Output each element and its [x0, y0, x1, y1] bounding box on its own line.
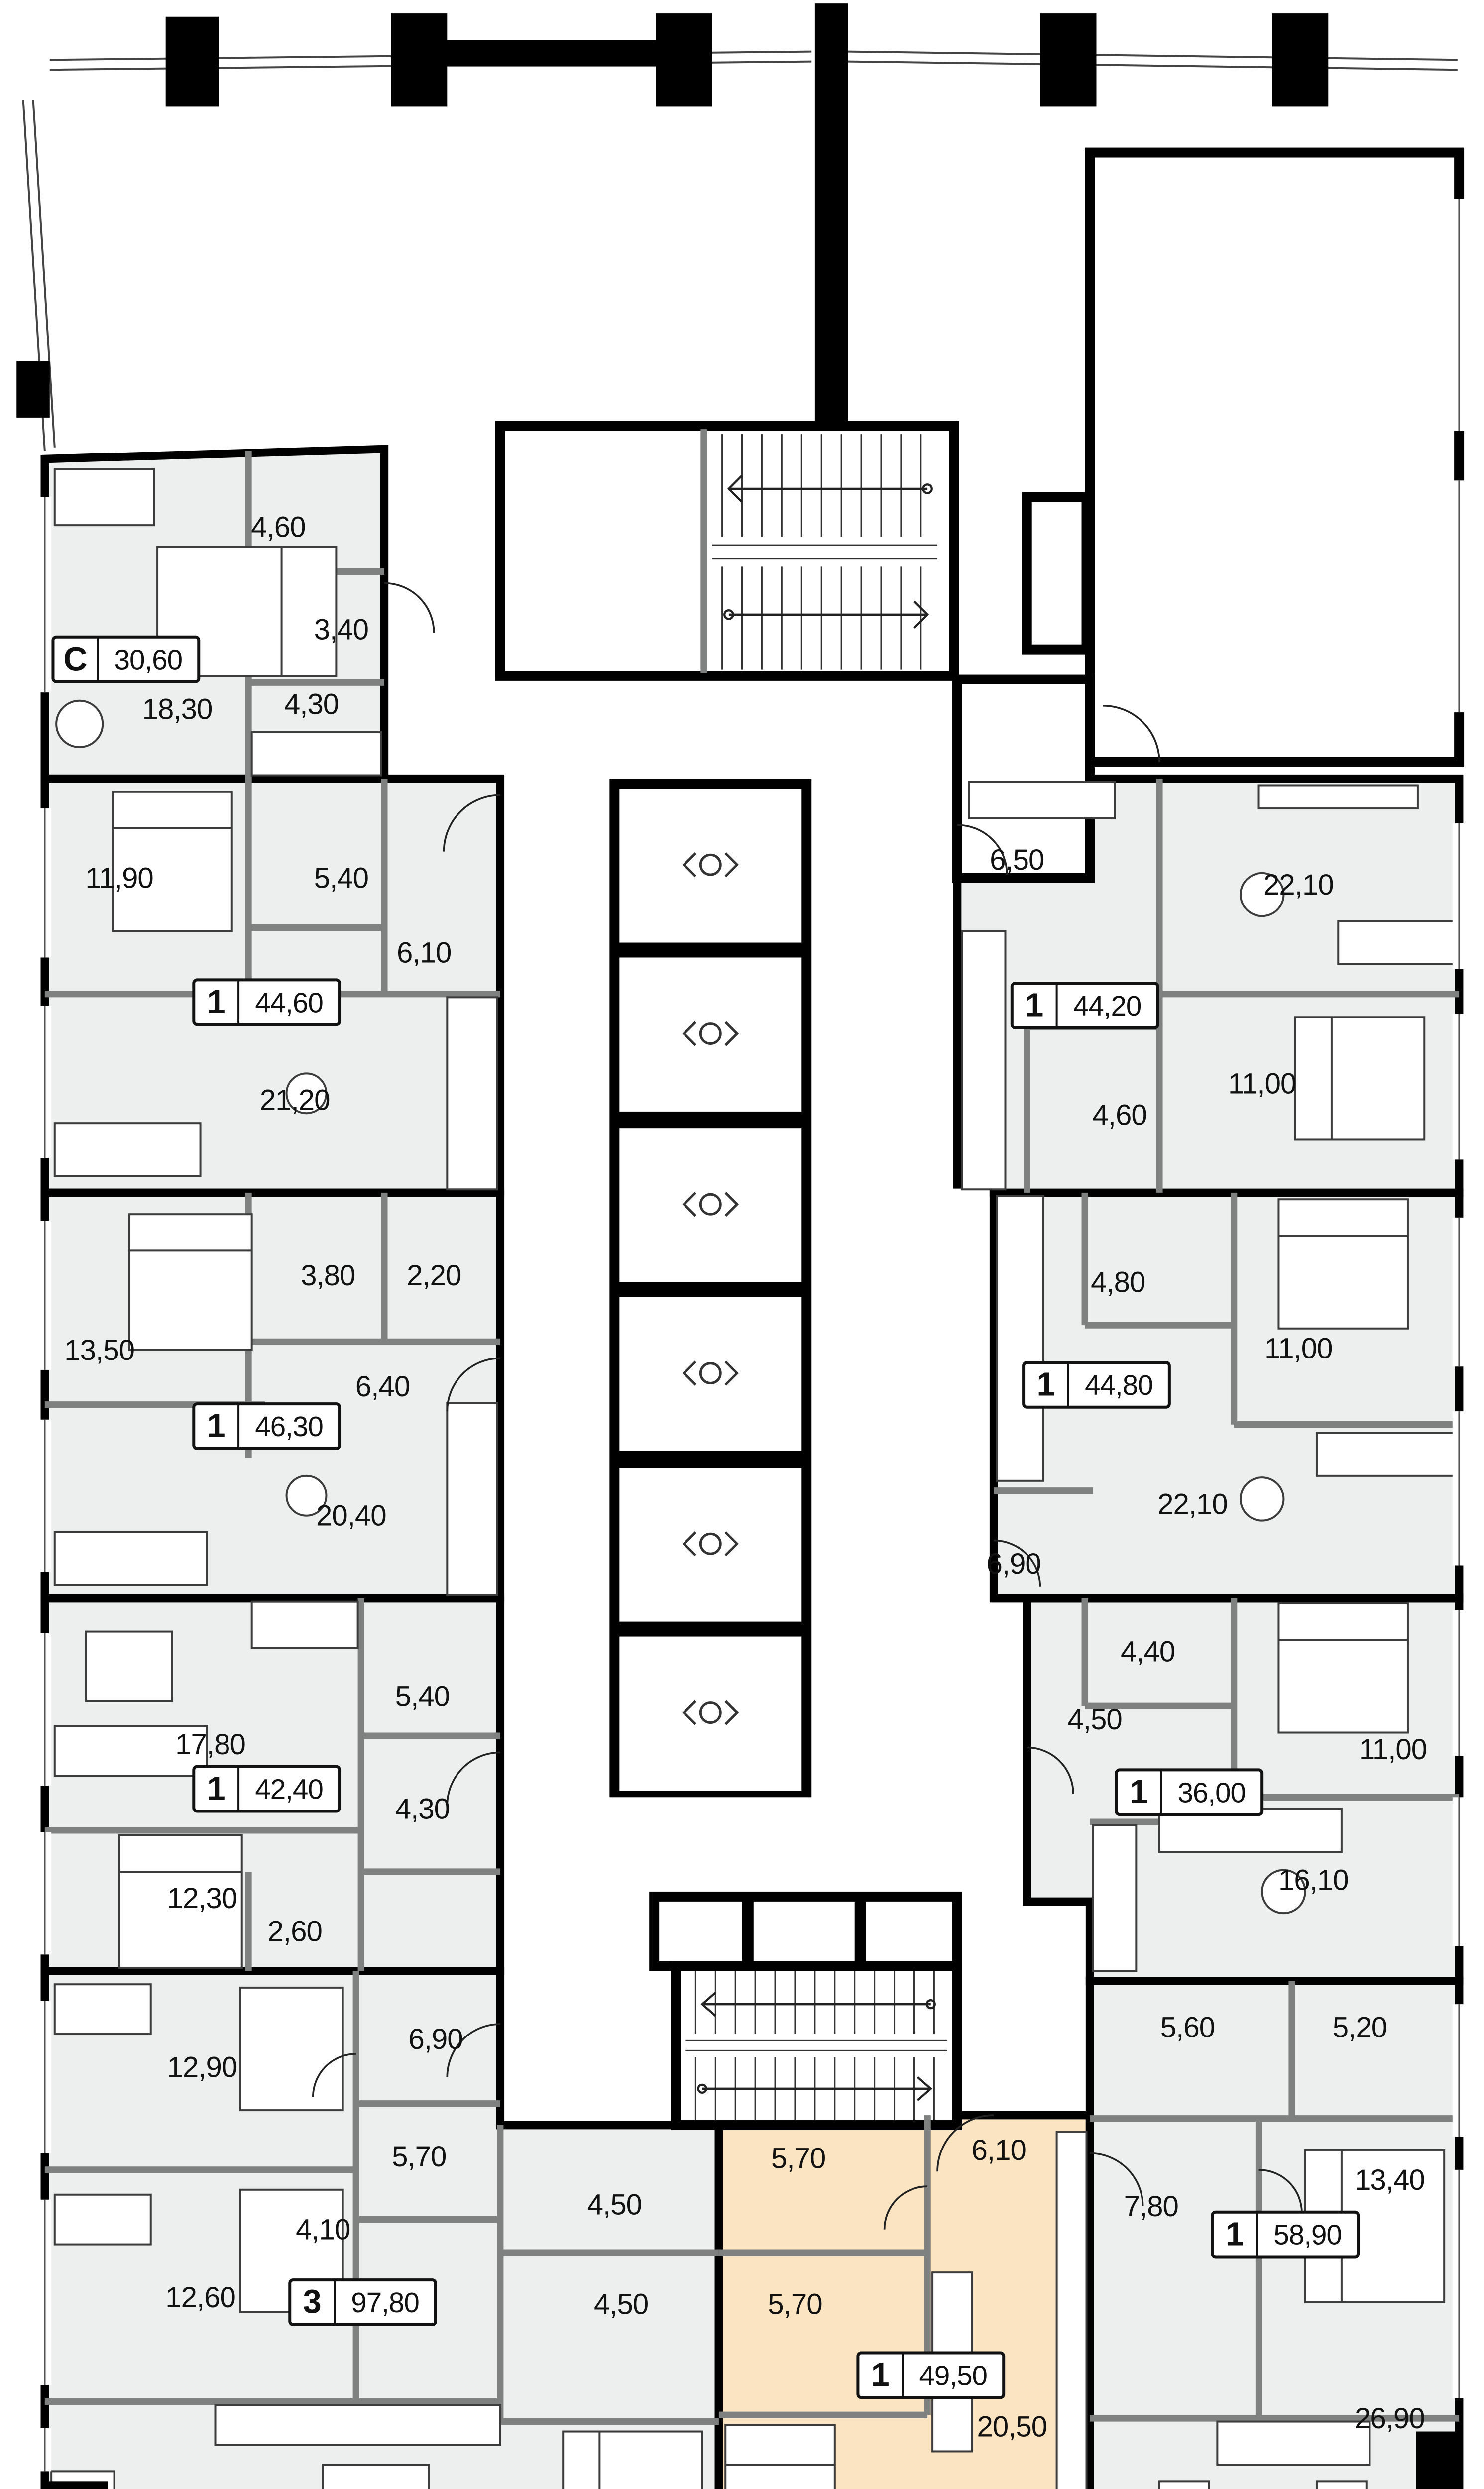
room-area-label: 5,70	[771, 2143, 825, 2175]
desk	[55, 2195, 151, 2245]
room-area-label: 21,20	[260, 1084, 330, 1117]
room-area-label: 4,60	[251, 511, 305, 543]
room-area-label: 5,70	[392, 2141, 446, 2173]
room-area-label: 12,90	[167, 2051, 237, 2084]
room-area-label: 11,00	[1359, 1733, 1427, 1766]
room-area-label: 11,00	[1228, 1067, 1296, 1100]
vacant-unit	[1090, 153, 1459, 762]
room-area-label: 16,10	[1278, 1864, 1349, 1897]
core-spine-wall	[815, 3, 848, 470]
kitchen-counter	[962, 931, 1006, 1189]
svg-text:44,20: 44,20	[1073, 990, 1142, 1021]
svg-text:42,40: 42,40	[255, 1774, 323, 1805]
tv-bench	[1259, 785, 1418, 808]
room-area-label: 26,90	[1355, 2402, 1425, 2435]
room-area-label: 22,10	[1263, 869, 1334, 901]
svg-text:1: 1	[871, 2357, 890, 2393]
room-area-label: 4,40	[1121, 1635, 1175, 1668]
room-area-label: 4,50	[1067, 1703, 1122, 1736]
room-area-label: 4,30	[284, 688, 339, 720]
kitchen-counter	[997, 1196, 1043, 1481]
svg-text:44,60: 44,60	[255, 987, 323, 1018]
room-area-label: 4,10	[296, 2214, 350, 2246]
svg-text:36,00: 36,00	[1177, 1777, 1246, 1808]
room-area-label: 13,50	[64, 1334, 134, 1366]
shaft-room	[1027, 497, 1087, 650]
apartment-badge-49-50: 1 49,50	[858, 2353, 1004, 2397]
sofa	[1317, 2481, 1367, 2489]
svg-text:1: 1	[1025, 987, 1043, 1024]
svg-text:1: 1	[1036, 1366, 1055, 1403]
bed	[725, 2425, 835, 2489]
room-area-label: 6,40	[355, 1370, 410, 1403]
svg-text:46,30: 46,30	[255, 1411, 323, 1442]
room-area-label: 3,40	[314, 614, 368, 646]
table	[56, 701, 103, 747]
facade-pier	[45, 2481, 108, 2489]
room-area-label: 7,80	[1124, 2190, 1178, 2223]
kitchen-counter	[216, 2405, 500, 2445]
bed	[240, 1988, 342, 2110]
floor-plan: 18,30 4,60 3,40 4,30 11,90 5,40 6,10 21,…	[0, 0, 1484, 2489]
svg-text:58,90: 58,90	[1273, 2219, 1342, 2251]
sofa	[1317, 1433, 1456, 1476]
facade-column	[656, 13, 712, 106]
sofa	[55, 1123, 201, 1176]
kitchen-counter	[1057, 2132, 1087, 2489]
sofa	[1159, 2481, 1209, 2489]
room-area-label: 6,10	[397, 936, 451, 969]
svg-text:1: 1	[207, 984, 226, 1020]
svg-text:97,80: 97,80	[351, 2287, 419, 2318]
staircase-bottom	[676, 1966, 957, 2125]
apartment-badge-44-80: 1 44,80	[1024, 1362, 1169, 1407]
facade-column	[1272, 13, 1328, 106]
apartment-badge-46-30: 1 46,30	[194, 1404, 340, 1449]
room-area-label: 6,90	[408, 2023, 462, 2055]
room-area-label: 12,60	[165, 2281, 235, 2314]
room-area-label: 13,40	[1355, 2164, 1425, 2196]
bed	[1295, 1017, 1425, 1139]
apartment-badge-58-90: 1 58,90	[1212, 2212, 1358, 2257]
room-area-label: 12,30	[167, 1882, 237, 1915]
svg-text:1: 1	[1130, 1774, 1148, 1810]
bed	[113, 792, 232, 931]
island-table	[1217, 2422, 1370, 2465]
room-area-label: 18,30	[142, 693, 213, 725]
sofa	[1338, 921, 1454, 964]
bed	[129, 1214, 252, 1350]
table	[1241, 1477, 1284, 1521]
room-area-label: 5,40	[395, 1680, 450, 1712]
facade-pier	[1416, 2432, 1460, 2489]
kitchen-counter	[252, 732, 381, 776]
room-area-label: 4,50	[594, 2288, 648, 2320]
facade-pier	[16, 361, 50, 418]
apartment-badge-44-20: 1 44,20	[1012, 983, 1158, 1028]
svg-text:30,60: 30,60	[114, 644, 183, 676]
room-area-label: 4,60	[1092, 1099, 1146, 1131]
kitchen-counter	[447, 997, 497, 1189]
kitchen-counter	[252, 1602, 358, 1648]
room-area-label: 20,40	[316, 1500, 386, 1532]
room-area-label: 22,10	[1157, 1488, 1228, 1520]
svg-text:44,80: 44,80	[1085, 1369, 1153, 1401]
elevator-bank	[609, 779, 811, 1797]
svg-text:1: 1	[1226, 2216, 1244, 2253]
desk	[55, 1984, 151, 2034]
room-area-label: 5,40	[314, 862, 368, 895]
kitchen-counter	[447, 1403, 497, 1595]
facade-column	[1040, 13, 1096, 106]
room-area-label: 17,80	[175, 1728, 245, 1761]
apartment-badge-36-00: 1 36,00	[1116, 1770, 1262, 1814]
bed	[1278, 1603, 1408, 1733]
apartment-badge-42-40: 1 42,40	[194, 1767, 340, 1811]
facade-column	[166, 17, 219, 107]
facade-column	[391, 13, 447, 106]
room-area-label: 2,20	[407, 1259, 461, 1292]
room-area-label: 5,60	[1160, 2012, 1215, 2044]
room-area-label: 4,80	[1091, 1266, 1145, 1299]
room-area-label: 4,50	[587, 2189, 642, 2221]
room-area-label: 6,50	[990, 844, 1044, 876]
svg-text:49,50: 49,50	[919, 2360, 987, 2391]
utility-shafts	[654, 1897, 957, 1966]
room-area-label: 2,60	[268, 1916, 322, 1948]
svg-text:1: 1	[207, 1408, 226, 1445]
room-area-label: 6,90	[986, 1548, 1040, 1580]
apartment-badge-97-80: 3 97,80	[290, 2280, 436, 2325]
staircase-top	[500, 426, 954, 676]
svg-text:1: 1	[207, 1770, 226, 1807]
kitchen-counter	[1093, 1825, 1137, 1971]
svg-text:3: 3	[303, 2284, 322, 2321]
room-area-label: 11,00	[1264, 1333, 1332, 1365]
room-area-label: 4,30	[395, 1793, 450, 1825]
room-area-label: 5,70	[768, 2288, 822, 2320]
svg-text:С: С	[63, 641, 87, 678]
apartment-badge-44-60: 1 44,60	[194, 980, 340, 1024]
room-area-label: 5,20	[1333, 2012, 1387, 2044]
bed	[563, 2432, 702, 2489]
room-area-label: 3,80	[301, 1259, 355, 1292]
bed	[1278, 1199, 1408, 1329]
dining-table	[323, 2465, 429, 2489]
table	[86, 1632, 172, 1701]
apartment-badge-30-60: С 30,60	[53, 637, 199, 682]
room-area-label: 6,10	[972, 2134, 1026, 2166]
facade-wall-segment	[444, 40, 660, 66]
room-area-label: 11,90	[85, 862, 153, 895]
desk	[55, 469, 154, 525]
wardrobe	[969, 782, 1115, 818]
room-area-label: 20,50	[977, 2411, 1047, 2443]
sofa	[55, 1532, 207, 1585]
